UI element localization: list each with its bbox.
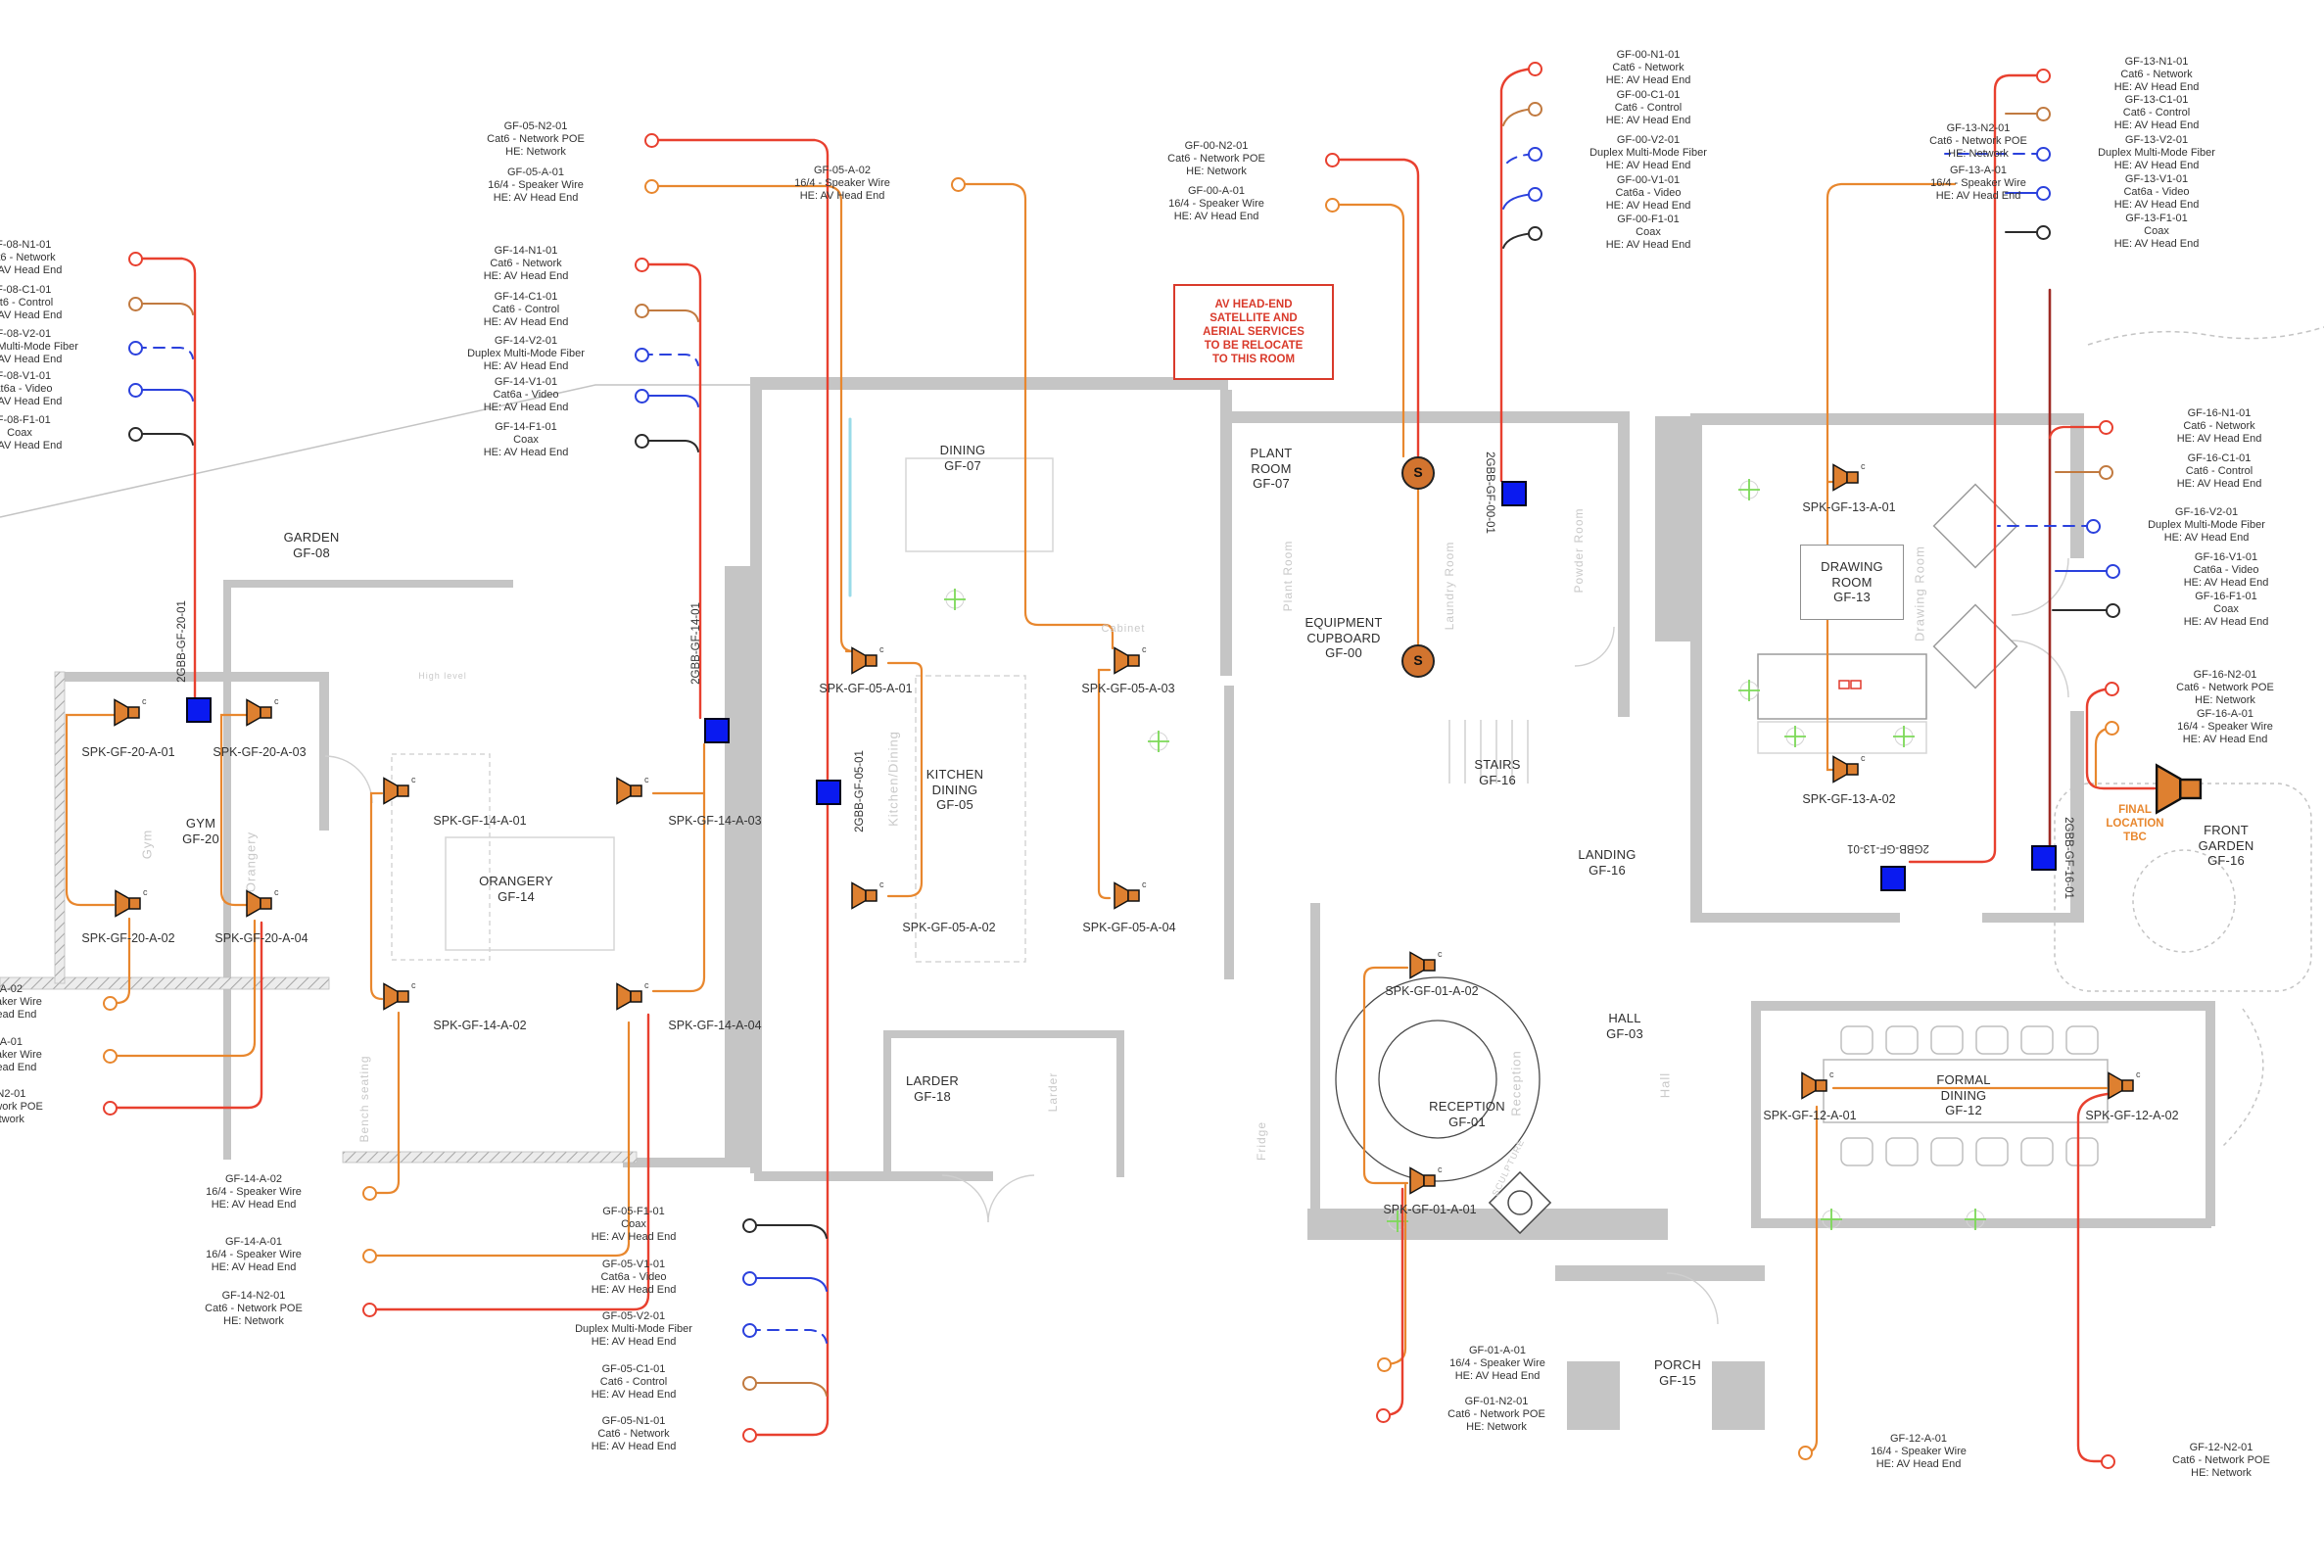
room-label-formal: FORMAL DINING GF-12	[1936, 1072, 1990, 1118]
underlay-room-name: Orangery	[244, 832, 259, 892]
cable-callout: GF-16-C1-01Cat6 - ControlHE: AV Head End	[2117, 452, 2321, 492]
speaker-icon-large	[2152, 764, 2212, 820]
cable-terminal-icon	[2086, 519, 2101, 534]
cable-callout-id: GF-05-F1-01	[532, 1206, 735, 1218]
cable-callout: GF-00-C1-01Cat6 - ControlHE: AV Head End	[1546, 89, 1750, 128]
cable-callout-id: GF-08-V2-01	[0, 328, 121, 341]
cable-terminal-icon	[644, 133, 659, 148]
cable-callout: GF-14-C1-01Cat6 - ControlHE: AV Head End	[424, 291, 628, 330]
cable-callout: GF-05-N1-01Cat6 - NetworkHE: AV Head End	[532, 1415, 735, 1454]
cable-callout: GF-13-C1-01Cat6 - ControlHE: AV Head End	[2055, 94, 2258, 133]
touch-panel-icon	[816, 780, 841, 805]
note-box: AV HEAD-END SATELLITE AND AERIAL SERVICE…	[1173, 284, 1334, 380]
cable-callout-cable: Cat6 - Network POE	[1395, 1408, 1598, 1421]
cable-callout-cable: Cat6a - Video	[2124, 564, 2324, 577]
boundary-lines	[0, 327, 2324, 1146]
cable-terminal-icon	[103, 1049, 118, 1064]
cable-callout: GF-16-A-0116/4 - Speaker WireHE: AV Head…	[2123, 708, 2324, 747]
cable-callout-dest: HE: AV Head End	[2055, 160, 2258, 172]
cable-terminal-icon	[742, 1271, 757, 1286]
underlay-room-name: Hall	[1658, 1072, 1673, 1098]
cable-callout-id: GF-16-C1-01	[2117, 452, 2321, 465]
touch-panel-label: 2GBB-GF-13-01	[1847, 842, 1929, 854]
underlay-room-name: Laundry Room	[1443, 542, 1456, 631]
cable-terminal-icon	[2106, 564, 2120, 579]
cable-callout: GF-00-F1-01CoaxHE: AV Head End	[1546, 214, 1750, 253]
cable-callout-cable: Cat6a - Video	[532, 1271, 735, 1284]
cable-callout-id: GF-14-V2-01	[424, 335, 628, 348]
speaker-channel-tag: c	[879, 879, 884, 889]
cable-callout: GF-05-C1-01Cat6 - ControlHE: AV Head End	[532, 1363, 735, 1402]
cable-callout-id: GF-16-V2-01	[2105, 506, 2308, 519]
cable-callout-cable: Cat6 - Network POE	[2123, 682, 2324, 694]
cable-callout-dest: HE: AV Head End	[0, 396, 121, 408]
cable-terminal-icon	[1528, 147, 1542, 162]
cable-callout-cable: Duplex Multi-Mode Fiber	[2105, 519, 2308, 532]
touch-panel-label: 2GBB-GF-16-01	[2063, 817, 2074, 899]
underlay-room-name: Gym	[140, 830, 155, 859]
cable-callout-id: GF-05-C1-01	[532, 1363, 735, 1376]
cable-callout-id: GF-13-A-01	[1876, 165, 2080, 177]
speaker-channel-tag: c	[411, 980, 416, 990]
cable-callout-cable: Duplex Multi-Mode Fiber	[2055, 147, 2258, 160]
underlay-room-name: Powder Room	[1572, 507, 1586, 593]
cable-callout-dest: HE: Network	[152, 1315, 356, 1328]
cable-callout-cable: Cat6 - Network	[0, 252, 121, 264]
cable-callout-dest: HE: AV Head End	[2124, 616, 2324, 629]
cable-callout-dest: HE: AV Head End	[2055, 119, 2258, 132]
cable-callout: GF-12-A-0116/4 - Speaker WireHE: AV Head…	[1817, 1433, 2020, 1472]
touch-panel-icon	[2031, 845, 2057, 871]
cable-callout-cable: Cat6 - Control	[532, 1376, 735, 1389]
speaker-label: SPK-GF-14-A-04	[668, 1019, 761, 1032]
cable-terminal-icon	[1528, 187, 1542, 202]
cable-terminal-icon	[1528, 226, 1542, 241]
cable-callout-id: GF-14-A-02	[152, 1173, 356, 1186]
cable-terminal-icon	[2106, 603, 2120, 618]
cable-callout-dest: HE: AV Head End	[1546, 74, 1750, 87]
room-label-landing: LANDING GF-16	[1578, 847, 1636, 878]
cable-callout-id: GF-00-N2-01	[1115, 140, 1318, 153]
cable-callout: GF-05-V2-01Duplex Multi-Mode FiberHE: AV…	[532, 1310, 735, 1350]
cable-terminal-icon	[2036, 147, 2051, 162]
cable-terminal-icon	[1377, 1357, 1392, 1372]
floor-plan-canvas: GF-08-N1-01Cat6 - NetworkHE: AV Head End…	[0, 0, 2324, 1568]
cable-callout-cable: 16/4 - Speaker Wire	[434, 179, 638, 192]
room-label-porch: PORCH GF-15	[1654, 1357, 1701, 1388]
cable-callout-dest: HE: Network	[1115, 166, 1318, 178]
cable-callout-dest: HE: Network	[2123, 694, 2324, 707]
cable-callout: GF-13-V2-01Duplex Multi-Mode FiberHE: AV…	[2055, 134, 2258, 173]
cable-callout: GF-14-N2-01Cat6 - Network POEHE: Network	[152, 1290, 356, 1329]
cable-callout-cable: Cat6a - Video	[2055, 186, 2258, 199]
speaker-channel-tag: c	[1438, 1164, 1443, 1174]
cable-terminal-icon	[2036, 225, 2051, 240]
cable-callout-id: GF-20-N2-01	[0, 1088, 96, 1101]
equipment-speaker-icon: S	[1401, 644, 1435, 678]
cable-callout-dest: HE: AV Head End	[424, 360, 628, 373]
cable-terminal-icon	[742, 1218, 757, 1233]
cable-callout: GF-16-F1-01CoaxHE: AV Head End	[2124, 591, 2324, 630]
cable-callout-cable: Coax	[424, 434, 628, 447]
cable-terminal-icon	[128, 383, 143, 398]
cable-callout-dest: HE: AV Head End	[532, 1336, 735, 1349]
cable-callout-dest: HE: AV Head End	[740, 190, 944, 203]
cable-callout-dest: HE: Network	[434, 146, 638, 159]
cable-callout-id: GF-14-F1-01	[424, 421, 628, 434]
cable-callout-dest: HE: AV Head End	[0, 309, 121, 322]
room-label-drawing: DRAWING ROOM GF-13	[1800, 545, 1904, 620]
cable-callout-id: GF-13-F1-01	[2055, 213, 2258, 225]
touch-panel-icon	[1880, 866, 1906, 891]
room-label-stairs: STAIRS GF-16	[1474, 757, 1520, 787]
cable-callout-id: GF-12-A-01	[1817, 1433, 2020, 1446]
speaker-label: SPK-GF-14-A-02	[433, 1019, 526, 1032]
cable-terminal-icon	[2036, 186, 2051, 201]
room-label-orangery: ORANGERY GF-14	[479, 874, 553, 904]
cable-callout-cable: Cat6 - Control	[424, 304, 628, 316]
cable-callout-id: GF-13-V1-01	[2055, 173, 2258, 186]
cable-callout-cable: Cat6 - Network POE	[1876, 135, 2080, 148]
cable-callout: GF-00-N2-01Cat6 - Network POEHE: Network	[1115, 140, 1318, 179]
speaker-channel-tag: c	[143, 887, 148, 897]
cable-terminal-icon	[1528, 102, 1542, 117]
cable-callout-cable: Duplex Multi-Mode Fiber	[1546, 147, 1750, 160]
cable-terminal-icon	[2105, 682, 2119, 696]
cable-callout: GF-08-C1-01Cat6 - ControlHE: AV Head End	[0, 284, 121, 323]
speaker-label: SPK-GF-01-A-02	[1385, 984, 1478, 998]
cable-callout: GF-14-A-0116/4 - Speaker WireHE: AV Head…	[152, 1236, 356, 1275]
cable-callout-id: GF-08-C1-01	[0, 284, 121, 297]
cable-callout-id: GF-05-N2-01	[434, 120, 638, 133]
cable-callout-id: GF-16-A-01	[2123, 708, 2324, 721]
cable-terminal-icon	[742, 1376, 757, 1391]
cable-callout-id: GF-14-C1-01	[424, 291, 628, 304]
cable-callout-cable: Duplex Multi-Mode Fiber	[532, 1323, 735, 1336]
cable-terminal-icon	[2036, 69, 2051, 83]
cable-callout-cable: 16/4 - Speaker Wire	[1817, 1446, 2020, 1458]
cable-callout: GF-20-N2-01Cat6 - Network POEHE: Network	[0, 1088, 96, 1127]
cable-callout-id: GF-00-C1-01	[1546, 89, 1750, 102]
cable-terminal-icon	[2105, 721, 2119, 736]
speaker-channel-tag: c	[274, 887, 279, 897]
touch-panel-label: 2GBB-GF-05-01	[854, 750, 866, 832]
cable-callout: GF-01-N2-01Cat6 - Network POEHE: Network	[1395, 1396, 1598, 1435]
speaker-channel-tag: c	[1861, 461, 1866, 471]
speaker-channel-tag: c	[2136, 1069, 2141, 1079]
cable-callout: GF-14-V2-01Duplex Multi-Mode FiberHE: AV…	[424, 335, 628, 374]
cable-callout-id: GF-13-N2-01	[1876, 122, 2080, 135]
cable-terminal-icon	[103, 996, 118, 1011]
cable-callout-cable: 16/4 - Speaker Wire	[740, 177, 944, 190]
equipment-speaker-icon: S	[1401, 456, 1435, 490]
speaker-channel-tag: c	[1829, 1069, 1834, 1079]
cable-callout-dest: HE: AV Head End	[2055, 81, 2258, 94]
cable-callout-cable: Cat6a - Video	[1546, 187, 1750, 200]
cable-callout-dest: HE: Network	[1395, 1421, 1598, 1434]
cable-callout-dest: HE: AV Head End	[532, 1441, 735, 1453]
cable-callout-dest: HE: AV Head End	[424, 402, 628, 414]
cable-callout: GF-13-N1-01Cat6 - NetworkHE: AV Head End	[2055, 56, 2258, 95]
cable-callout-id: GF-12-N2-01	[2119, 1442, 2323, 1454]
cable-callout-cable: 16/4 - Speaker Wire	[0, 1049, 96, 1062]
speaker-channel-tag: c	[644, 775, 649, 784]
underlay-room-name: High level	[418, 671, 467, 681]
cable-callout-cable: Cat6 - Network	[2055, 69, 2258, 81]
cable-callout-cable: Coax	[0, 427, 121, 440]
cable-callout: GF-14-N1-01Cat6 - NetworkHE: AV Head End	[424, 245, 628, 284]
cable-terminal-icon	[1325, 153, 1340, 167]
cable-callout-cable: 16/4 - Speaker Wire	[1396, 1357, 1599, 1370]
cable-terminal-icon	[128, 252, 143, 266]
cable-callout-cable: 16/4 - Speaker Wire	[1115, 198, 1318, 211]
cable-callout-cable: Coax	[2124, 603, 2324, 616]
cable-callout-cable: 16/4 - Speaker Wire	[0, 996, 96, 1009]
cable-terminal-icon	[1528, 62, 1542, 76]
cable-callout: GF-05-A-0216/4 - Speaker WireHE: AV Head…	[740, 165, 944, 204]
cable-callout-cable: Cat6 - Network POE	[434, 133, 638, 146]
speaker-label: SPK-GF-14-A-01	[433, 814, 526, 828]
cable-terminal-icon	[1325, 198, 1340, 213]
cable-terminal-icon	[635, 434, 649, 449]
speaker-label: SPK-GF-05-A-01	[819, 682, 912, 695]
cable-callout-cable: Cat6 - Network	[532, 1428, 735, 1441]
cable-terminal-icon	[635, 304, 649, 318]
speaker-label: SPK-GF-05-A-03	[1081, 682, 1174, 695]
cable-callout: GF-08-N1-01Cat6 - NetworkHE: AV Head End	[0, 239, 121, 278]
cable-terminal-icon	[635, 348, 649, 362]
cable-callout: GF-00-A-0116/4 - Speaker WireHE: AV Head…	[1115, 185, 1318, 224]
cable-callout-dest: HE: AV Head End	[2123, 734, 2324, 746]
underlay-room-name: Kitchen/Dining	[886, 731, 901, 827]
cable-callout-cable: Cat6 - Control	[2055, 107, 2258, 119]
cable-terminal-icon	[635, 258, 649, 272]
cable-callout: GF-05-F1-01CoaxHE: AV Head End	[532, 1206, 735, 1245]
cable-callout-cable: Cat6 - Control	[1546, 102, 1750, 115]
speaker-label: SPK-GF-05-A-04	[1082, 921, 1175, 934]
cable-callout-cable: 16/4 - Speaker Wire	[152, 1249, 356, 1261]
cable-terminal-icon	[2101, 1454, 2115, 1469]
cable-callout-id: GF-05-V2-01	[532, 1310, 735, 1323]
touch-panel-label: 2GBB-GF-00-01	[1484, 451, 1495, 534]
cable-callout: GF-08-V1-01Cat6a - VideoHE: AV Head End	[0, 370, 121, 409]
cable-terminal-icon	[2099, 420, 2113, 435]
cable-callout-dest: HE: AV Head End	[424, 270, 628, 283]
speaker-label: SPK-GF-20-A-03	[213, 745, 306, 759]
cable-callout-cable: 16/4 - Speaker Wire	[2123, 721, 2324, 734]
cable-callout-dest: HE: AV Head End	[532, 1389, 735, 1402]
cable-callout-dest: HE: AV Head End	[152, 1199, 356, 1212]
cable-callout-dest: HE: AV Head End	[2105, 532, 2308, 545]
cable-callout-cable: Coax	[1546, 226, 1750, 239]
cable-callout-id: GF-05-A-01	[434, 166, 638, 179]
cable-callout-id: GF-08-V1-01	[0, 370, 121, 383]
cable-callout-id: GF-08-F1-01	[0, 414, 121, 427]
cable-callout-dest: HE: Network	[2119, 1467, 2323, 1480]
cable-callout-cable: Coax	[2055, 225, 2258, 238]
speaker-channel-tag: c	[1142, 879, 1147, 889]
cable-callout-id: GF-00-F1-01	[1546, 214, 1750, 226]
cable-callout-cable: Cat6 - Control	[0, 297, 121, 309]
cable-terminal-icon	[2099, 465, 2113, 480]
cable-callout-dest: HE: AV Head End	[532, 1284, 735, 1297]
cable-callout: GF-20-A-0116/4 - Speaker WireHE: AV Head…	[0, 1036, 96, 1075]
cable-callout-dest: HE: AV Head End	[1546, 160, 1750, 172]
speaker-label: SPK-GF-14-A-03	[668, 814, 761, 828]
cable-terminal-icon	[951, 177, 966, 192]
room-label-kitchen: KITCHEN DINING GF-05	[926, 767, 983, 813]
cable-callout-id: GF-00-A-01	[1115, 185, 1318, 198]
room-label-garden: GARDEN GF-08	[284, 530, 340, 560]
cable-callout-dest: HE: AV Head End	[1546, 239, 1750, 252]
cable-callout-dest: HE: AV Head End	[1546, 115, 1750, 127]
cable-terminal-icon	[742, 1323, 757, 1338]
cable-callout-id: GF-13-V2-01	[2055, 134, 2258, 147]
cable-callout: GF-16-V1-01Cat6a - VideoHE: AV Head End	[2124, 551, 2324, 591]
underlay-room-name: Drawing Room	[1913, 546, 1927, 641]
cable-terminal-icon	[362, 1303, 377, 1317]
room-label-equipment: EQUIPMENT CUPBOARD GF-00	[1304, 615, 1382, 661]
speaker-channel-tag: c	[644, 980, 649, 990]
cable-callout-dest: HE: AV Head End	[2117, 433, 2321, 446]
cable-callout-id: GF-14-V1-01	[424, 376, 628, 389]
speaker-label: SPK-GF-13-A-01	[1802, 500, 1895, 514]
speaker-label: SPK-GF-12-A-01	[1763, 1109, 1856, 1122]
room-label-gym: GYM GF-20	[182, 816, 219, 846]
cable-callout-cable: Duplex Multi-Mode Fiber	[424, 348, 628, 360]
cable-callout-cable: Cat6 - Network POE	[1115, 153, 1318, 166]
underlay-room-name: Plant Room	[1281, 541, 1295, 612]
cable-callout-cable: Cat6a - Video	[0, 383, 121, 396]
cable-terminal-icon	[644, 179, 659, 194]
speaker-channel-tag: c	[1438, 949, 1443, 959]
cable-callout-dest: HE: AV Head End	[1817, 1458, 2020, 1471]
room-label-front_garden: FRONT GARDEN GF-16	[2199, 823, 2254, 869]
cable-callout-dest: HE: AV Head End	[0, 1009, 96, 1022]
speaker-label: SPK-GF-20-A-01	[81, 745, 174, 759]
cable-terminal-icon	[362, 1186, 377, 1201]
cable-callout-dest: HE: AV Head End	[1546, 200, 1750, 213]
touch-panel-icon	[186, 697, 212, 723]
cable-callout-dest: HE: AV Head End	[0, 1062, 96, 1074]
cable-callout-id: GF-20-A-02	[0, 983, 96, 996]
speaker-label: SPK-GF-05-A-02	[902, 921, 995, 934]
cable-terminal-icon	[1798, 1446, 1813, 1460]
cable-terminal-icon	[742, 1428, 757, 1443]
speaker-label: SPK-GF-12-A-02	[2085, 1109, 2178, 1122]
touch-panel-label: 2GBB-GF-20-01	[176, 600, 188, 683]
cable-callout-id: GF-16-F1-01	[2124, 591, 2324, 603]
cable-callout: GF-14-F1-01CoaxHE: AV Head End	[424, 421, 628, 460]
cable-callout: GF-16-N1-01Cat6 - NetworkHE: AV Head End	[2117, 407, 2321, 447]
cable-callout-cable: 16/4 - Speaker Wire	[1876, 177, 2080, 190]
cable-callout-cable: Coax	[532, 1218, 735, 1231]
cable-callout-id: GF-05-A-02	[740, 165, 944, 177]
cable-callout-cable: Cat6 - Network	[2117, 420, 2321, 433]
speaker-channel-tag: c	[274, 696, 279, 706]
cable-callout: GF-05-V1-01Cat6a - VideoHE: AV Head End	[532, 1259, 735, 1298]
cable-callout-dest: HE: AV Head End	[1115, 211, 1318, 223]
cable-callout: GF-13-F1-01CoaxHE: AV Head End	[2055, 213, 2258, 252]
speaker-channel-tag: c	[142, 696, 147, 706]
cable-callout-id: GF-00-N1-01	[1546, 49, 1750, 62]
floor-plan-drawing	[0, 0, 2324, 1568]
speaker-label: SPK-GF-20-A-04	[214, 931, 308, 945]
cable-callout-dest: HE: AV Head End	[0, 440, 121, 452]
cable-callout-cable: Cat6 - Network POE	[0, 1101, 96, 1114]
cable-callout-id: GF-13-N1-01	[2055, 56, 2258, 69]
cable-callout-dest: HE: AV Head End	[2117, 478, 2321, 491]
cable-terminal-icon	[2036, 107, 2051, 121]
cable-callout-id: GF-14-N2-01	[152, 1290, 356, 1303]
cable-callout-id: GF-08-N1-01	[0, 239, 121, 252]
cable-callout-id: GF-01-N2-01	[1395, 1396, 1598, 1408]
speaker-channel-tag: c	[879, 644, 884, 654]
speaker-channel-tag: c	[1861, 753, 1866, 763]
cable-callout: GF-12-N2-01Cat6 - Network POEHE: Network	[2119, 1442, 2323, 1481]
speaker-label: SPK-GF-01-A-01	[1383, 1203, 1476, 1216]
cable-callout-id: GF-20-A-01	[0, 1036, 96, 1049]
cable-terminal-icon	[128, 297, 143, 311]
cable-callout-cable: Duplex Multi-Mode Fiber	[0, 341, 121, 354]
cable-callout-cable: Cat6 - Control	[2117, 465, 2321, 478]
cable-callout-dest: HE: AV Head End	[152, 1261, 356, 1274]
underlay-room-name: Reception	[1509, 1050, 1524, 1117]
cable-callout: GF-14-V1-01Cat6a - VideoHE: AV Head End	[424, 376, 628, 415]
room-label-plant: PLANT ROOM GF-07	[1251, 446, 1293, 492]
cable-callout: GF-16-N2-01Cat6 - Network POEHE: Network	[2123, 669, 2324, 708]
speaker-label: SPK-GF-13-A-02	[1802, 792, 1895, 806]
room-label-dining: DINING GF-07	[940, 443, 986, 473]
underlay-room-name: Fridge	[1255, 1121, 1268, 1161]
cable-callout: GF-13-A-0116/4 - Speaker WireHE: AV Head…	[1876, 165, 2080, 204]
cable-terminal-icon	[103, 1101, 118, 1116]
cable-callout-id: GF-13-C1-01	[2055, 94, 2258, 107]
speaker-channel-tag: c	[411, 775, 416, 784]
cable-callout-dest: HE: AV Head End	[532, 1231, 735, 1244]
room-label-hall: HALL GF-03	[1606, 1011, 1643, 1041]
cable-callout-id: GF-05-N1-01	[532, 1415, 735, 1428]
cable-callout-id: GF-14-N1-01	[424, 245, 628, 258]
cable-callout: GF-08-V2-01Duplex Multi-Mode FiberHE: AV…	[0, 328, 121, 367]
touch-panel-icon	[704, 718, 730, 743]
cable-callout-cable: Cat6a - Video	[424, 389, 628, 402]
cable-callout: GF-13-V1-01Cat6a - VideoHE: AV Head End	[2055, 173, 2258, 213]
underlay-room-name: Larder	[1046, 1072, 1060, 1113]
underlay-room-name: Cabinet	[1102, 623, 1146, 635]
speaker-label: SPK-GF-20-A-02	[81, 931, 174, 945]
cable-callout-dest: HE: AV Head End	[2124, 577, 2324, 590]
cable-callout: GF-00-V1-01Cat6a - VideoHE: AV Head End	[1546, 174, 1750, 214]
cable-callout-id: GF-00-V1-01	[1546, 174, 1750, 187]
cable-terminal-icon	[1376, 1408, 1391, 1423]
cable-callout-id: GF-16-N2-01	[2123, 669, 2324, 682]
cable-callout-dest: HE: AV Head End	[1396, 1370, 1599, 1383]
cable-callout-id: GF-14-A-01	[152, 1236, 356, 1249]
cable-callout-id: GF-00-V2-01	[1546, 134, 1750, 147]
cable-terminal-icon	[635, 389, 649, 404]
cable-callout: GF-00-N1-01Cat6 - NetworkHE: AV Head End	[1546, 49, 1750, 88]
cable-callout-dest: HE: AV Head End	[2055, 199, 2258, 212]
cable-callout: GF-14-A-0216/4 - Speaker WireHE: AV Head…	[152, 1173, 356, 1212]
underlay-room-name: Bench seating	[357, 1055, 371, 1142]
cable-callout-dest: HE: AV Head End	[424, 447, 628, 459]
cable-callout-id: GF-05-V1-01	[532, 1259, 735, 1271]
cable-callout-dest: HE: AV Head End	[0, 354, 121, 366]
cable-terminal-icon	[128, 341, 143, 356]
cable-callout: GF-05-A-0116/4 - Speaker WireHE: AV Head…	[434, 166, 638, 206]
cable-callout-dest: HE: Network	[0, 1114, 96, 1126]
